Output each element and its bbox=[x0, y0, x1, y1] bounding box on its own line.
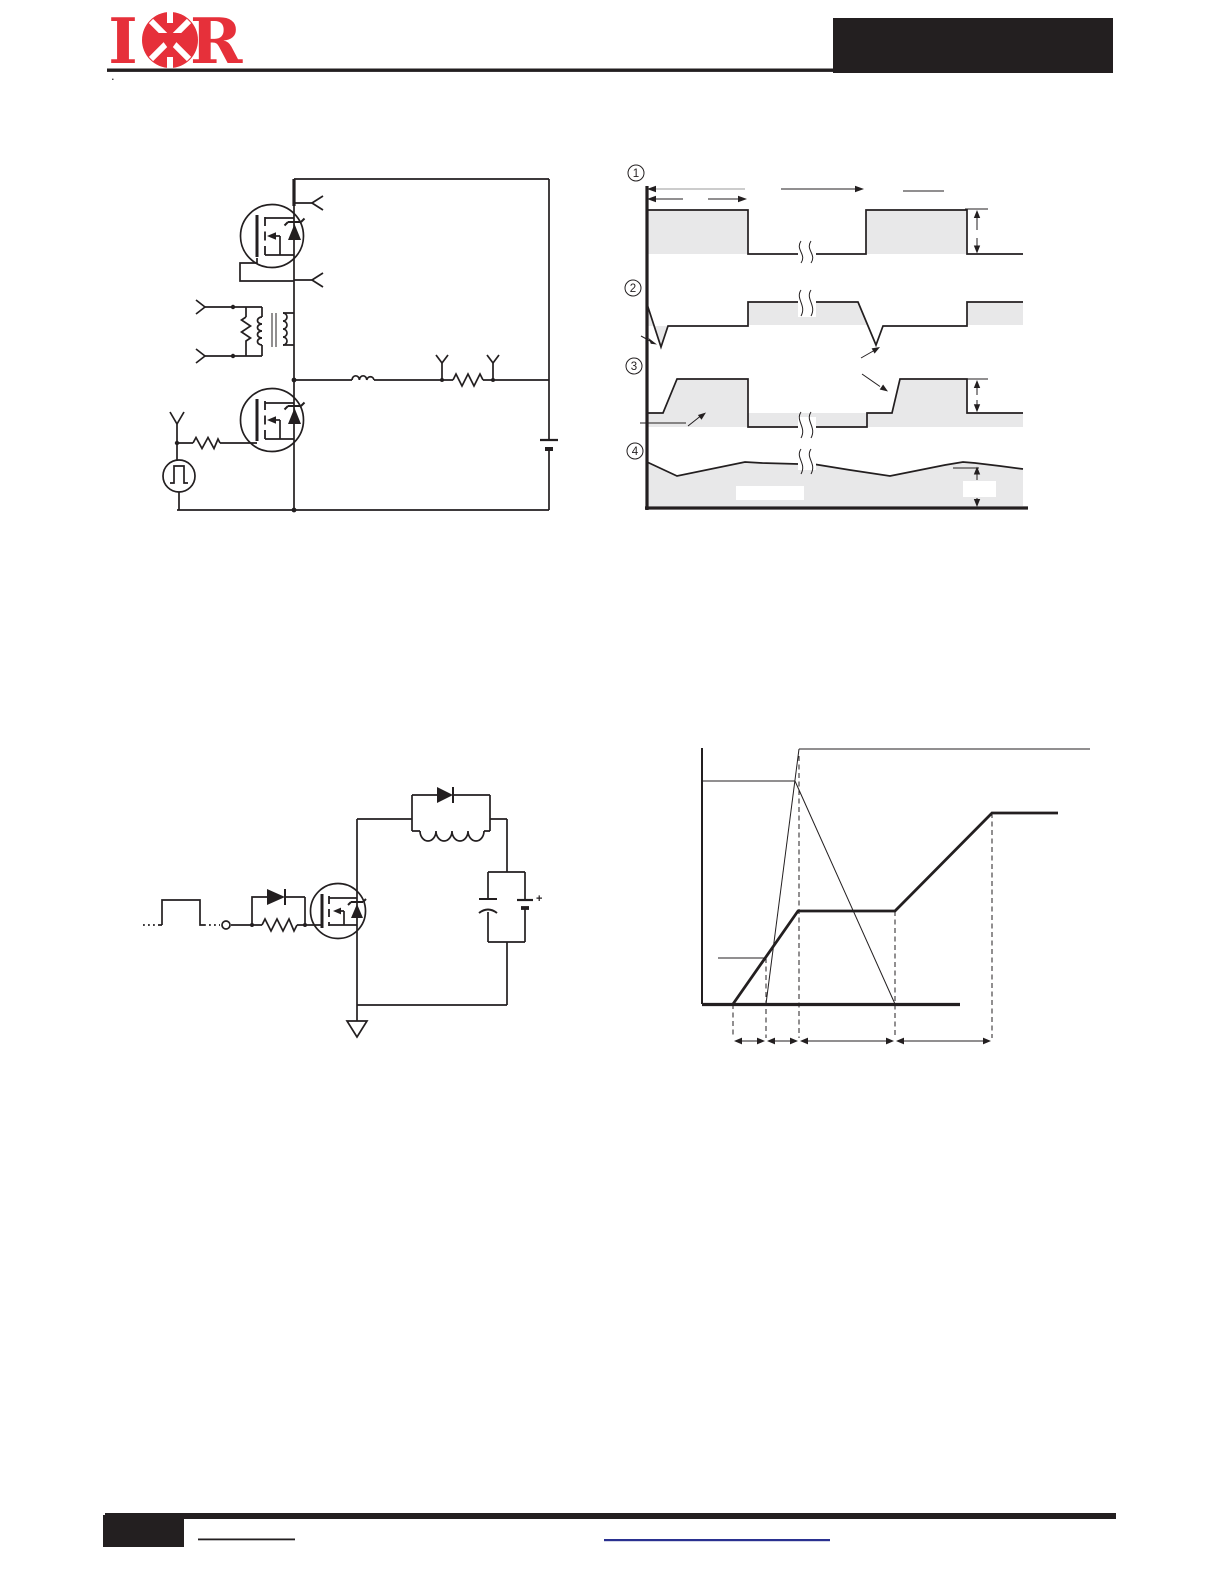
drain-current-line bbox=[766, 749, 799, 1004]
gate-diode-icon bbox=[267, 889, 285, 905]
header: I R . bbox=[107, 4, 1113, 83]
gate-charge-waveform-figure bbox=[702, 748, 1090, 1044]
logo-letter-i: I bbox=[108, 4, 137, 78]
logo-letter-r: R bbox=[190, 4, 243, 78]
marker-3: 3 bbox=[631, 361, 637, 373]
battery-plus-sign: + bbox=[536, 893, 542, 905]
dut2-mosfet-icon bbox=[311, 884, 367, 939]
dvdt-test-circuit-figure bbox=[163, 179, 558, 512]
series-resistor-icon bbox=[453, 374, 483, 386]
junction-dots bbox=[175, 305, 495, 513]
load-inductor-icon bbox=[420, 831, 484, 841]
dut-mosfet-icon bbox=[241, 205, 305, 268]
supply-capacitor-icon bbox=[479, 899, 497, 913]
header-rule bbox=[107, 69, 833, 72]
circuit2-wiring bbox=[158, 795, 525, 1021]
marker-4: 4 bbox=[632, 446, 639, 458]
footer bbox=[103, 1513, 1116, 1547]
amplitude-dimension-3 bbox=[965, 379, 988, 412]
circuit-wiring bbox=[177, 179, 549, 510]
axis-break-icons bbox=[798, 241, 816, 474]
driver-mosfet-icon bbox=[241, 389, 305, 452]
blank-label-box-2 bbox=[963, 481, 996, 497]
pulse-width-dimension bbox=[647, 196, 747, 202]
supply-battery-icon: + bbox=[517, 893, 542, 908]
marker-2: 2 bbox=[630, 283, 636, 295]
inductor-icon bbox=[352, 376, 374, 380]
ground-icon bbox=[347, 1021, 367, 1037]
waveform-markers: 1 2 3 4 bbox=[625, 165, 644, 459]
primary-resistor-icon bbox=[242, 317, 251, 345]
period-dimension bbox=[647, 186, 864, 192]
footer-link-underline[interactable] bbox=[604, 1539, 830, 1541]
probe-terminal-icons bbox=[170, 196, 499, 424]
footer-page-box bbox=[103, 1515, 184, 1547]
footer-bar bbox=[105, 1513, 1116, 1519]
part-number-box bbox=[833, 18, 1113, 73]
datasheet-page: I R . bbox=[0, 0, 1224, 1584]
stray-dot: . bbox=[111, 68, 115, 83]
drain-voltage-line bbox=[795, 781, 895, 1004]
blank-label-box-1 bbox=[736, 486, 804, 500]
marker-1: 1 bbox=[633, 168, 639, 180]
input-terminal-icon bbox=[222, 921, 230, 929]
dvdt-waveforms-figure: 1 2 3 4 bbox=[625, 165, 1028, 510]
ir-logo: I R bbox=[108, 4, 243, 78]
amplitude-dimension-1 bbox=[965, 209, 988, 254]
gate-resistor-icon bbox=[193, 438, 220, 449]
pulse-generator-icon bbox=[163, 460, 195, 492]
battery-icon bbox=[540, 440, 558, 449]
charge-boundary-dashes bbox=[733, 756, 992, 1038]
gate-charge-circuit-figure: + bbox=[143, 787, 542, 1037]
gate-resistor2-icon bbox=[262, 919, 297, 931]
freewheel-diode-icon bbox=[437, 787, 453, 803]
charge-dimension-arrows bbox=[734, 1038, 991, 1045]
footer-note-rule bbox=[198, 1539, 295, 1541]
gate-drive-transformer-icon bbox=[258, 313, 288, 347]
